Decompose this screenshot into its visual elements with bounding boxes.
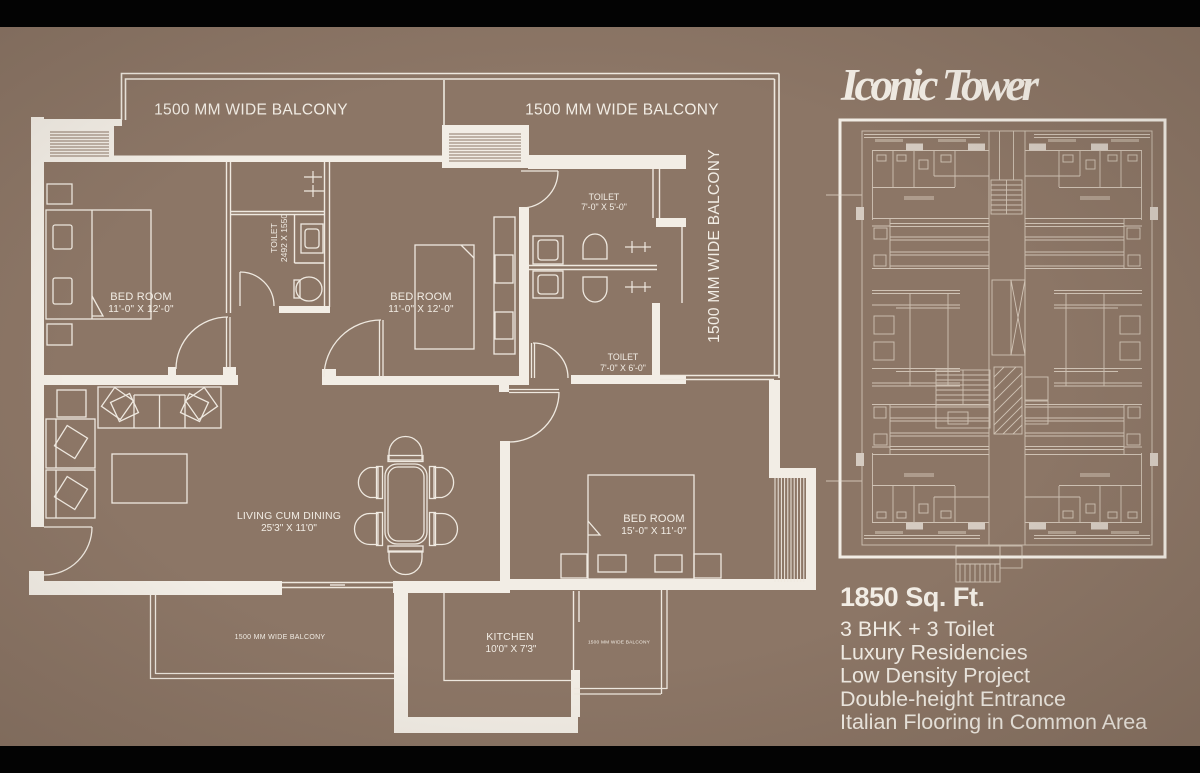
svg-text:KITCHEN: KITCHEN xyxy=(486,631,534,643)
svg-text:BED ROOM: BED ROOM xyxy=(110,291,172,303)
svg-text:1500 MM WIDE BALCONY: 1500 MM WIDE BALCONY xyxy=(588,640,651,646)
svg-text:LIVING CUM DINING: LIVING CUM DINING xyxy=(237,510,341,522)
svg-text:Luxury Residencies: Luxury Residencies xyxy=(840,640,1028,664)
svg-text:1850 Sq. Ft.: 1850 Sq. Ft. xyxy=(840,582,985,612)
svg-text:BED ROOM: BED ROOM xyxy=(390,291,452,303)
svg-text:1500 MM WIDE BALCONY: 1500 MM WIDE BALCONY xyxy=(154,102,348,119)
svg-text:Low Density Project: Low Density Project xyxy=(840,664,1030,688)
svg-text:11'-0" X 12'-0": 11'-0" X 12'-0" xyxy=(388,304,454,315)
svg-text:TOILET: TOILET xyxy=(589,192,620,202)
svg-text:1500 MM WIDE BALCONY: 1500 MM WIDE BALCONY xyxy=(235,634,326,641)
svg-text:1500 MM WIDE BALCONY: 1500 MM WIDE BALCONY xyxy=(706,149,723,343)
svg-text:BED ROOM: BED ROOM xyxy=(623,513,685,525)
svg-text:Iconic Tower: Iconic Tower xyxy=(840,60,1039,110)
svg-text:Italian Flooring in Common Are: Italian Flooring in Common Area xyxy=(840,710,1147,734)
svg-text:7'-0" X 6'-0": 7'-0" X 6'-0" xyxy=(600,363,646,373)
svg-text:15'-0" X 11'-0": 15'-0" X 11'-0" xyxy=(621,526,687,537)
svg-text:1500 MM WIDE BALCONY: 1500 MM WIDE BALCONY xyxy=(525,102,719,119)
svg-text:7'-0" X 5'-0": 7'-0" X 5'-0" xyxy=(581,202,627,212)
svg-text:25'3" X 11'0": 25'3" X 11'0" xyxy=(261,523,317,534)
svg-text:10'0" X 7'3": 10'0" X 7'3" xyxy=(486,644,537,655)
svg-text:TOILET: TOILET xyxy=(608,352,639,362)
svg-text:TOILET: TOILET xyxy=(269,223,279,253)
svg-text:3 BHK + 3 Toilet: 3 BHK + 3 Toilet xyxy=(840,617,994,641)
svg-text:Double-height Entrance: Double-height Entrance xyxy=(840,687,1066,711)
svg-text:11'-0" X 12'-0": 11'-0" X 12'-0" xyxy=(108,304,174,315)
svg-text:2492 X 1550: 2492 X 1550 xyxy=(279,214,289,262)
